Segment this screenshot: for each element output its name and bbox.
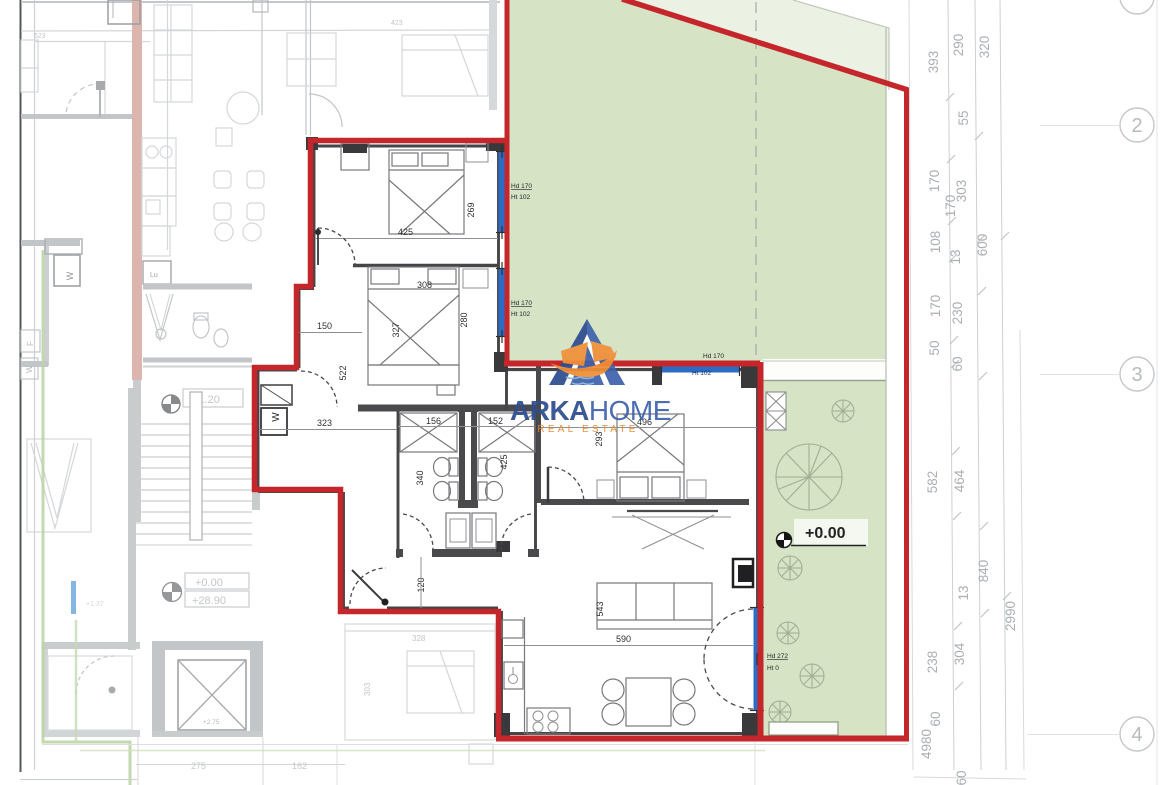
svg-text:50: 50 bbox=[927, 340, 942, 355]
svg-text:55: 55 bbox=[956, 110, 971, 125]
svg-text:3: 3 bbox=[1131, 364, 1142, 386]
svg-text:308: 308 bbox=[417, 280, 432, 290]
svg-text:2: 2 bbox=[1131, 115, 1142, 137]
svg-text:304: 304 bbox=[952, 642, 967, 665]
svg-text:+0.00: +0.00 bbox=[195, 577, 223, 589]
svg-text:327: 327 bbox=[391, 322, 401, 337]
svg-text:582: 582 bbox=[925, 471, 940, 494]
svg-text:Hd 170: Hd 170 bbox=[703, 353, 724, 360]
svg-text:Ht 102: Ht 102 bbox=[511, 194, 531, 201]
svg-text:W: W bbox=[271, 412, 282, 422]
svg-text:Hd 170: Hd 170 bbox=[511, 300, 532, 307]
svg-text:108: 108 bbox=[928, 231, 943, 254]
svg-text:303: 303 bbox=[363, 682, 372, 696]
svg-text:320: 320 bbox=[977, 36, 992, 59]
svg-text:522: 522 bbox=[338, 365, 348, 380]
svg-text:+28.90: +28.90 bbox=[192, 595, 226, 607]
svg-text:230: 230 bbox=[950, 302, 965, 325]
svg-text:REAL ESTATE: REAL ESTATE bbox=[537, 424, 638, 435]
svg-text:F: F bbox=[26, 341, 35, 346]
svg-text:13: 13 bbox=[948, 249, 963, 264]
svg-text:600: 600 bbox=[975, 234, 990, 257]
svg-text:W: W bbox=[65, 271, 75, 280]
svg-text:60: 60 bbox=[954, 770, 969, 785]
svg-text:60: 60 bbox=[928, 711, 943, 726]
svg-text:393: 393 bbox=[926, 51, 941, 74]
svg-text:280: 280 bbox=[459, 312, 469, 327]
svg-text:340: 340 bbox=[415, 470, 425, 485]
svg-text:170: 170 bbox=[928, 295, 943, 318]
svg-text:Ht 0: Ht 0 bbox=[767, 665, 779, 672]
svg-text:623: 623 bbox=[34, 33, 46, 40]
svg-text:Ht 102: Ht 102 bbox=[511, 311, 531, 318]
svg-text:60: 60 bbox=[950, 356, 965, 371]
svg-text:Hd 272: Hd 272 bbox=[767, 653, 788, 660]
svg-text:W: W bbox=[25, 365, 34, 373]
svg-text:162: 162 bbox=[292, 761, 307, 771]
svg-text:170: 170 bbox=[943, 195, 958, 218]
svg-text:156: 156 bbox=[426, 416, 441, 426]
svg-text:4: 4 bbox=[1131, 724, 1142, 746]
svg-text:Ht 102: Ht 102 bbox=[692, 370, 712, 377]
svg-text:323: 323 bbox=[317, 418, 332, 428]
svg-text:+2.75: +2.75 bbox=[203, 719, 220, 726]
svg-text:464: 464 bbox=[952, 469, 967, 492]
svg-text:ARKAHOME: ARKAHOME bbox=[510, 395, 671, 426]
svg-text:13: 13 bbox=[956, 585, 971, 600]
svg-text:425: 425 bbox=[398, 227, 413, 237]
svg-text:Hd 170: Hd 170 bbox=[511, 183, 532, 190]
svg-text:840: 840 bbox=[976, 560, 991, 583]
svg-text:150: 150 bbox=[317, 321, 332, 331]
svg-text:152: 152 bbox=[488, 416, 503, 426]
svg-text:+0.00: +0.00 bbox=[805, 525, 846, 542]
svg-text:543: 543 bbox=[595, 601, 605, 616]
svg-text:170: 170 bbox=[927, 170, 942, 193]
svg-text:+1.37: +1.37 bbox=[86, 601, 104, 608]
svg-text:290: 290 bbox=[951, 34, 966, 57]
svg-text:2990: 2990 bbox=[1003, 601, 1018, 631]
svg-text:423: 423 bbox=[391, 20, 403, 27]
svg-text:590: 590 bbox=[616, 634, 631, 644]
svg-text:328: 328 bbox=[412, 634, 426, 643]
svg-text:4980: 4980 bbox=[919, 729, 934, 759]
svg-text:275: 275 bbox=[191, 761, 206, 771]
svg-text:269: 269 bbox=[466, 202, 476, 217]
svg-text:238: 238 bbox=[925, 651, 940, 674]
svg-text:Lu: Lu bbox=[150, 272, 158, 279]
svg-text:425: 425 bbox=[499, 454, 509, 469]
